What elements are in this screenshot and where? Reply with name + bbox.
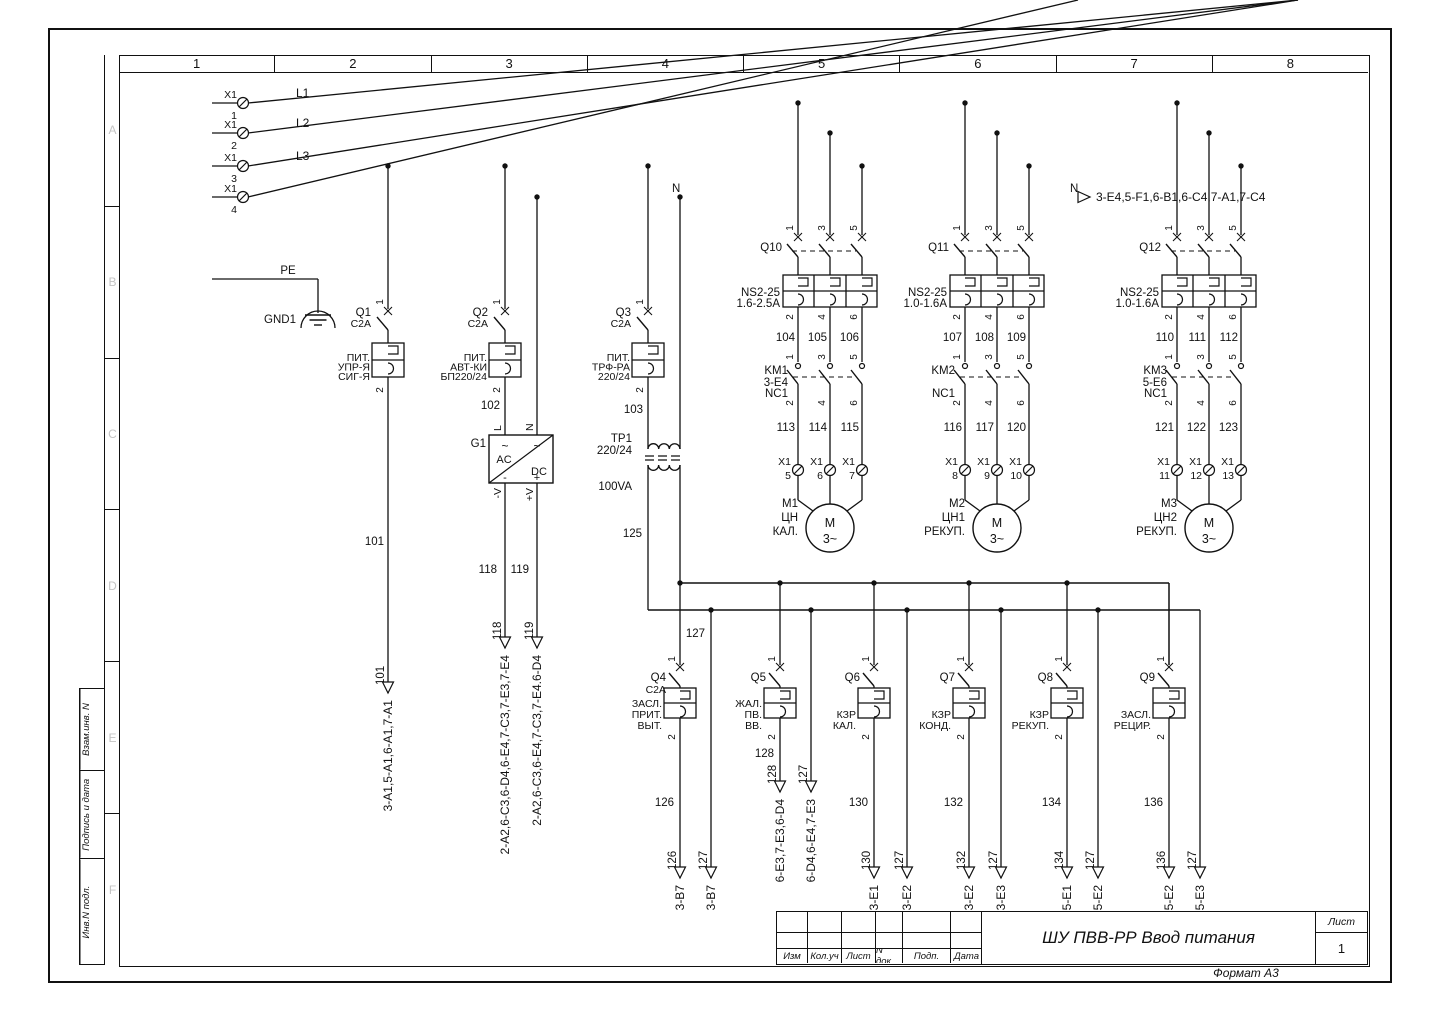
format-label: Формат А3 [1166, 966, 1326, 980]
revision-cell [777, 933, 808, 949]
revision-column-label: Кол.уч [808, 949, 842, 963]
row-letter: D [105, 510, 120, 662]
schematic-sheet: X11L1X12L2X13L3X14NN3-E4,5-F1,6-B1,6-C4,… [0, 0, 1429, 1010]
revision-cell [808, 912, 842, 933]
drawing-frame [119, 55, 1370, 967]
revision-column-label: N док. [876, 949, 903, 963]
stamp-box: Подпись и дата [79, 770, 105, 858]
revision-column-label: Изм [777, 949, 808, 963]
stamp-label: Взам.инв. N [80, 689, 93, 770]
revision-column-label: Дата [951, 949, 982, 963]
revision-cell [903, 912, 951, 933]
row-letter: E [105, 662, 120, 814]
column-number: 3 [432, 55, 588, 73]
revision-column-label: Лист [842, 949, 876, 963]
row-letter: B [105, 207, 120, 359]
sheet-number: 1 [1316, 933, 1367, 964]
revision-cell [876, 912, 903, 933]
stamp-label: Инв.N подл. [80, 859, 93, 964]
stamp-box: Взам.инв. N [79, 688, 105, 770]
row-letter: A [105, 55, 120, 207]
revision-cell [876, 933, 903, 949]
revision-cell [842, 912, 876, 933]
row-ruler: ABCDEF [104, 55, 120, 965]
drawing-title: ШУ ПВВ-РР Ввод питания [982, 912, 1315, 964]
sheet-label: Лист [1316, 912, 1367, 933]
revision-cell [951, 933, 982, 949]
revision-cell [777, 912, 808, 933]
sheet-box: Лист 1 [1315, 912, 1367, 964]
revision-cell [951, 912, 982, 933]
column-number: 7 [1057, 55, 1213, 73]
margin-stamps: Взам.инв. N Подпись и дата Инв.N подл. [79, 688, 105, 965]
stamp-box: Инв.N подл. [79, 858, 105, 965]
column-number: 8 [1213, 55, 1368, 73]
column-number: 4 [588, 55, 744, 73]
title-block: ИзмКол.учЛистN док.Подп.Дата ШУ ПВВ-РР В… [776, 911, 1368, 965]
row-letter: C [105, 359, 120, 511]
revision-column-label: Подп. [903, 949, 951, 963]
column-number: 2 [275, 55, 431, 73]
revision-cell [842, 933, 876, 949]
revision-table: ИзмКол.учЛистN док.Подп.Дата [777, 912, 982, 964]
stamp-label: Подпись и дата [80, 771, 93, 858]
column-number: 5 [744, 55, 900, 73]
column-ruler: 12345678 [119, 55, 1368, 73]
row-letter: F [105, 814, 120, 965]
revision-cell [808, 933, 842, 949]
column-number: 6 [900, 55, 1056, 73]
column-number: 1 [119, 55, 275, 73]
revision-cell [903, 933, 951, 949]
